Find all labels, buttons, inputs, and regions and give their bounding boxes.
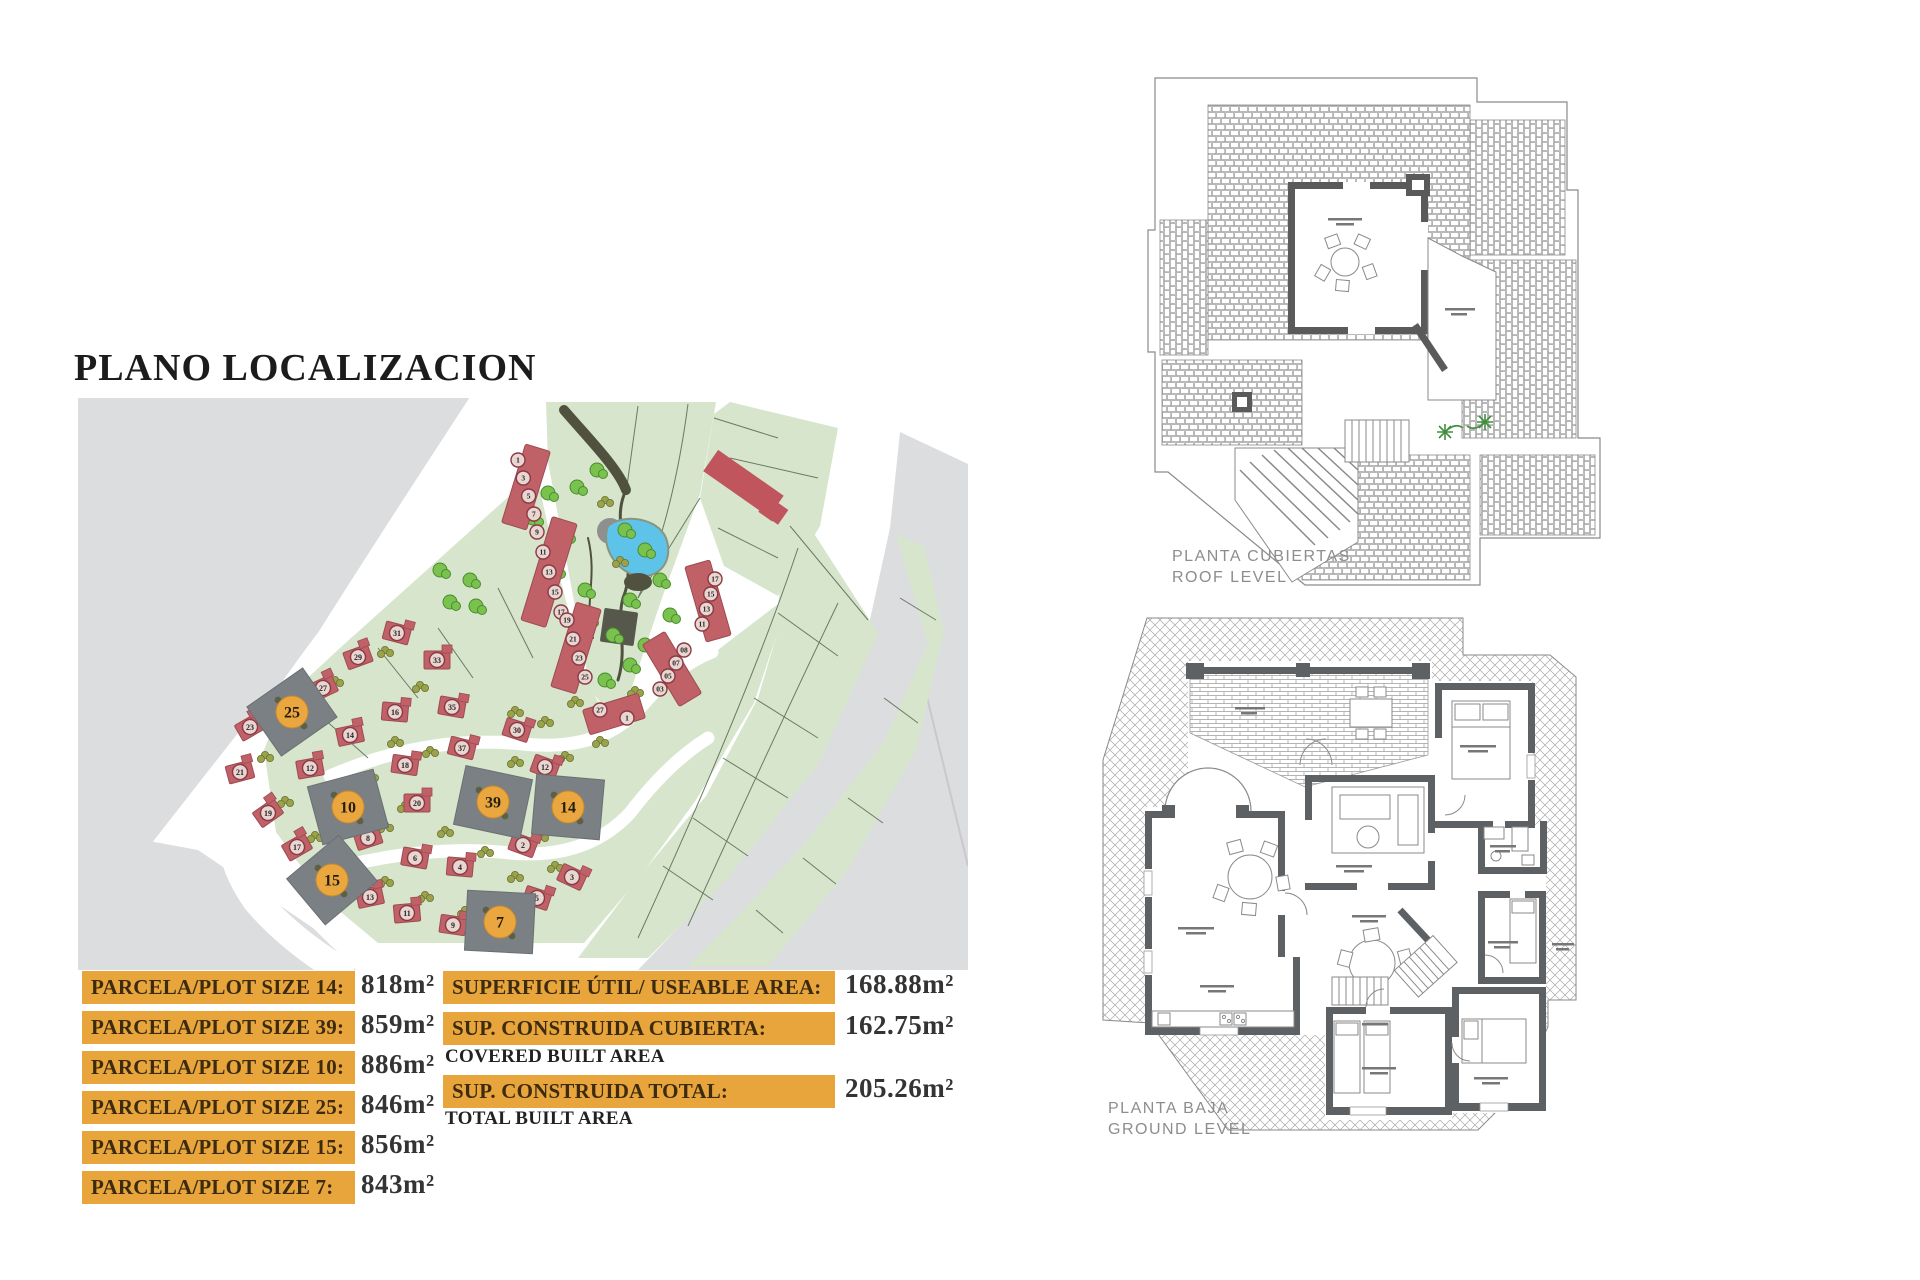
row-value: 843m² <box>361 1169 435 1200</box>
svg-text:9: 9 <box>535 528 539 537</box>
row-value: 859m² <box>361 1009 435 1040</box>
row-value: 846m² <box>361 1089 435 1120</box>
svg-text:7: 7 <box>532 510 536 519</box>
svg-text:14: 14 <box>560 800 576 817</box>
svg-text:8: 8 <box>366 834 370 843</box>
row-label: PARCELA/PLOT SIZE 15: <box>91 1135 344 1160</box>
svg-text:19: 19 <box>563 616 571 625</box>
ground-plan-label: PLANTA BAJA GROUND LEVEL <box>1108 1098 1251 1140</box>
svg-text:13: 13 <box>366 893 374 902</box>
svg-text:13: 13 <box>545 568 553 577</box>
table-row: PARCELA/PLOT SIZE 15: <box>82 1131 355 1164</box>
row-label: PARCELA/PLOT SIZE 10: <box>91 1055 344 1080</box>
row-value: 818m² <box>361 969 435 1000</box>
svg-text:17: 17 <box>293 843 301 852</box>
highlighted-plot: 14 <box>532 774 605 840</box>
row-label: PARCELA/PLOT SIZE 39: <box>91 1015 344 1040</box>
townhouse-row: 17151311 <box>685 560 731 642</box>
table-row: PARCELA/PLOT SIZE 39: <box>82 1011 355 1044</box>
svg-text:7: 7 <box>496 915 504 932</box>
svg-text:31: 31 <box>393 629 401 638</box>
roof-chimney-left <box>1232 392 1252 412</box>
svg-text:3: 3 <box>521 474 525 483</box>
svg-text:11: 11 <box>699 620 706 629</box>
row-label: PARCELA/PLOT SIZE 25: <box>91 1095 344 1120</box>
svg-text:17: 17 <box>711 575 719 584</box>
svg-text:21: 21 <box>569 635 577 644</box>
svg-text:19: 19 <box>264 809 272 818</box>
ground-plan-label-line1: PLANTA BAJA <box>1108 1098 1251 1119</box>
row-label: SUPERFICIE ÚTIL/ USEABLE AREA: <box>452 975 822 1000</box>
table-row: PARCELA/PLOT SIZE 25: <box>82 1091 355 1124</box>
page: { "title": "PLANO LOCALIZACION", "tables… <box>0 0 1920 1280</box>
table-row: PARCELA/PLOT SIZE 7: <box>82 1171 355 1204</box>
row-value: 856m² <box>361 1129 435 1160</box>
highlighted-plot: 7 <box>464 890 535 953</box>
ground-plan-label-line2: GROUND LEVEL <box>1108 1119 1251 1140</box>
svg-text:1: 1 <box>625 714 629 723</box>
svg-text:03: 03 <box>656 685 664 694</box>
table-row: SUP. CONSTRUIDA TOTAL: <box>443 1075 835 1108</box>
roof-chimney <box>1406 174 1430 196</box>
table-row: PARCELA/PLOT SIZE 14: <box>82 971 355 1004</box>
svg-text:25: 25 <box>284 705 300 722</box>
svg-text:29: 29 <box>354 653 362 662</box>
svg-text:14: 14 <box>346 731 354 740</box>
svg-text:05: 05 <box>664 672 672 681</box>
page-title: PLANO LOCALIZACION <box>74 346 536 390</box>
svg-text:11: 11 <box>403 909 411 918</box>
row-label: SUP. CONSTRUIDA CUBIERTA: <box>452 1016 766 1041</box>
ground-plan <box>1100 615 1740 1240</box>
svg-text:5: 5 <box>527 492 531 501</box>
roof-plan-label-line1: PLANTA CUBIERTAS <box>1172 546 1351 567</box>
row-value: 205.26m² <box>845 1073 954 1104</box>
table-row: SUPERFICIE ÚTIL/ USEABLE AREA: <box>443 971 835 1004</box>
roof-plan-label: PLANTA CUBIERTAS ROOF LEVEL <box>1172 546 1351 588</box>
svg-text:15: 15 <box>707 590 715 599</box>
row-label: PARCELA/PLOT SIZE 14: <box>91 975 344 1000</box>
svg-text:08: 08 <box>680 646 688 655</box>
svg-text:25: 25 <box>581 673 589 682</box>
svg-text:39: 39 <box>485 795 501 812</box>
svg-text:33: 33 <box>433 656 441 665</box>
svg-text:2: 2 <box>521 841 525 850</box>
roof-plan-label-line2: ROOF LEVEL <box>1172 567 1351 588</box>
svg-text:1: 1 <box>516 456 520 465</box>
svg-text:27: 27 <box>319 684 327 693</box>
row-label: SUP. CONSTRUIDA TOTAL: <box>452 1079 728 1104</box>
svg-text:35: 35 <box>448 703 456 712</box>
svg-text:15: 15 <box>324 873 340 890</box>
svg-text:23: 23 <box>575 654 583 663</box>
svg-text:10: 10 <box>340 800 356 817</box>
table-row: SUP. CONSTRUIDA CUBIERTA: <box>443 1012 835 1045</box>
svg-text:20: 20 <box>413 799 421 808</box>
svg-text:30: 30 <box>513 726 521 735</box>
tree-green-icon <box>663 608 681 624</box>
svg-text:6: 6 <box>413 854 417 863</box>
svg-text:11: 11 <box>539 548 546 557</box>
svg-text:13: 13 <box>703 605 711 614</box>
row-subcaption: COVERED BUILT AREA <box>445 1046 665 1068</box>
roof-solarium <box>1288 174 1435 334</box>
svg-text:15: 15 <box>551 588 559 597</box>
svg-text:4: 4 <box>458 863 462 872</box>
row-value: 168.88m² <box>845 969 954 1000</box>
table-row: PARCELA/PLOT SIZE 10: <box>82 1051 355 1084</box>
svg-text:9: 9 <box>451 921 455 930</box>
row-subcaption: TOTAL BUILT AREA <box>445 1108 633 1130</box>
svg-text:12: 12 <box>306 764 314 773</box>
svg-text:21: 21 <box>236 768 244 777</box>
svg-text:07: 07 <box>672 659 680 668</box>
row-value: 886m² <box>361 1049 435 1080</box>
roof-plan <box>1140 70 1700 595</box>
svg-text:27: 27 <box>596 706 604 715</box>
svg-text:23: 23 <box>246 723 254 732</box>
svg-text:37: 37 <box>458 744 466 753</box>
svg-text:3: 3 <box>570 873 574 882</box>
site-map: 1357911131517192123252711715131108070503… <box>78 398 968 970</box>
row-value: 162.75m² <box>845 1010 954 1041</box>
roof-stairs <box>1345 420 1409 462</box>
row-label: PARCELA/PLOT SIZE 7: <box>91 1175 333 1200</box>
svg-text:16: 16 <box>391 708 399 717</box>
svg-text:18: 18 <box>401 761 409 770</box>
svg-text:12: 12 <box>541 763 549 772</box>
